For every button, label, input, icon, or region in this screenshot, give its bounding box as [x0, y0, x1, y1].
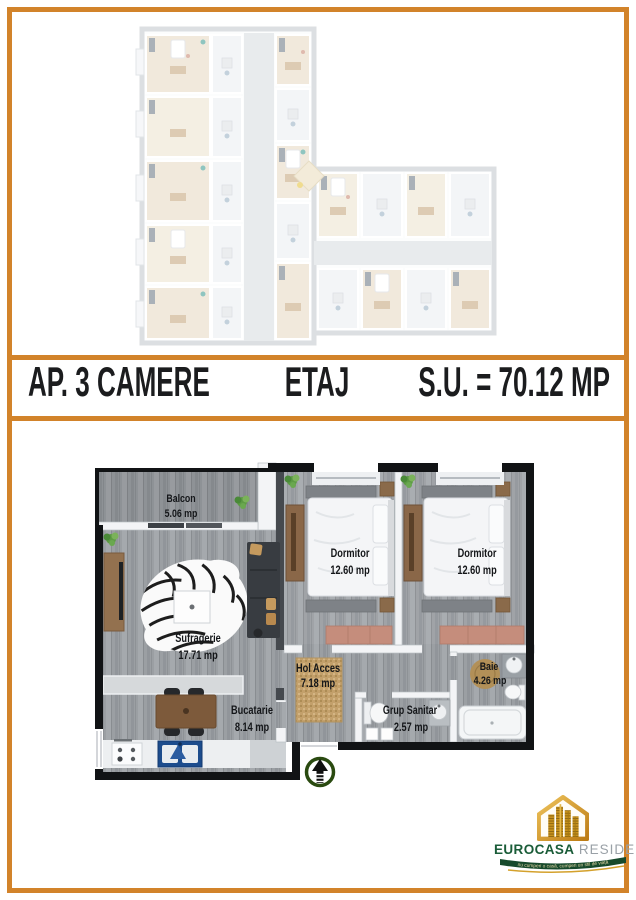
cabinet: [381, 728, 393, 740]
bed: [308, 498, 394, 596]
rug: [306, 486, 376, 498]
company-logo: EUROCASA RESIDENCE nu cumperi o casă, cu…: [494, 795, 632, 890]
kitchen-sink: [158, 741, 202, 767]
brand-suffix: RESIDENCE: [579, 842, 636, 857]
logo-tagline-swoosh: nu cumperi o casă, cumperi un stil de vi…: [496, 856, 630, 876]
dresser: [440, 626, 524, 644]
rug: [306, 600, 376, 612]
cabinet: [366, 728, 378, 740]
room-area: 2.57 mp: [394, 722, 428, 734]
logo-wordmark: EUROCASA RESIDENCE: [494, 843, 632, 857]
room-label: Hol Acces: [296, 663, 340, 675]
title-banner: AP. 3 CAMERE ETAJ S.U. = 70.12 MP: [12, 355, 624, 421]
bed: [424, 498, 510, 596]
room-area: 12.60 mp: [457, 565, 496, 577]
sideboard-tv: [104, 553, 124, 631]
room-area: 5.06 mp: [165, 508, 198, 520]
room-area: 4.26 mp: [474, 675, 507, 687]
rug: [422, 600, 492, 612]
room-label: Bucatarie: [231, 705, 273, 717]
room-label: Grup Sanitar: [383, 705, 437, 717]
room-label: Balcon: [166, 493, 195, 505]
apartment-floor-plan: Balcon 5.06 mp Sufragerie 17.71 mp Bucat…: [90, 450, 535, 795]
svg-text:nu cumperi o casă, cumperi un: nu cumperi o casă, cumperi un stil de vi…: [517, 859, 609, 869]
floor-label: ETAJ: [285, 360, 350, 406]
coffee-table: [174, 591, 210, 623]
room-area: 12.60 mp: [330, 565, 369, 577]
room-area: 8.14 mp: [235, 722, 269, 734]
apartment-type-label: AP. 3 CAMERE: [28, 360, 210, 406]
entrance-arrow-icon: [307, 759, 334, 786]
rug: [422, 486, 492, 498]
nightstand: [496, 598, 510, 612]
logo-house-icon: [537, 795, 589, 841]
room-label: Sufragerie: [175, 633, 221, 645]
kitchen-counter-end: [250, 740, 286, 768]
stove: [112, 739, 142, 765]
balcony-door: [148, 523, 184, 528]
room-area: 17.71 mp: [178, 650, 217, 662]
logo-tagline: nu cumperi o casă, cumperi un stil de vi…: [517, 859, 609, 869]
usable-area-label: S.U. = 70.12 MP: [418, 360, 610, 406]
room-label: Dormitor: [458, 548, 497, 560]
room-label: Baie: [480, 661, 499, 673]
sofa: [247, 542, 280, 638]
nightstand: [380, 482, 394, 496]
nightstand: [380, 598, 394, 612]
room-area: 7.18 mp: [301, 678, 335, 690]
flyer-page: AP. 3 CAMERE ETAJ S.U. = 70.12 MP: [0, 0, 636, 900]
room-label: Dormitor: [331, 548, 370, 560]
dresser: [326, 626, 392, 644]
balcony-door: [186, 523, 222, 528]
brand-name: EUROCASA: [494, 842, 574, 857]
